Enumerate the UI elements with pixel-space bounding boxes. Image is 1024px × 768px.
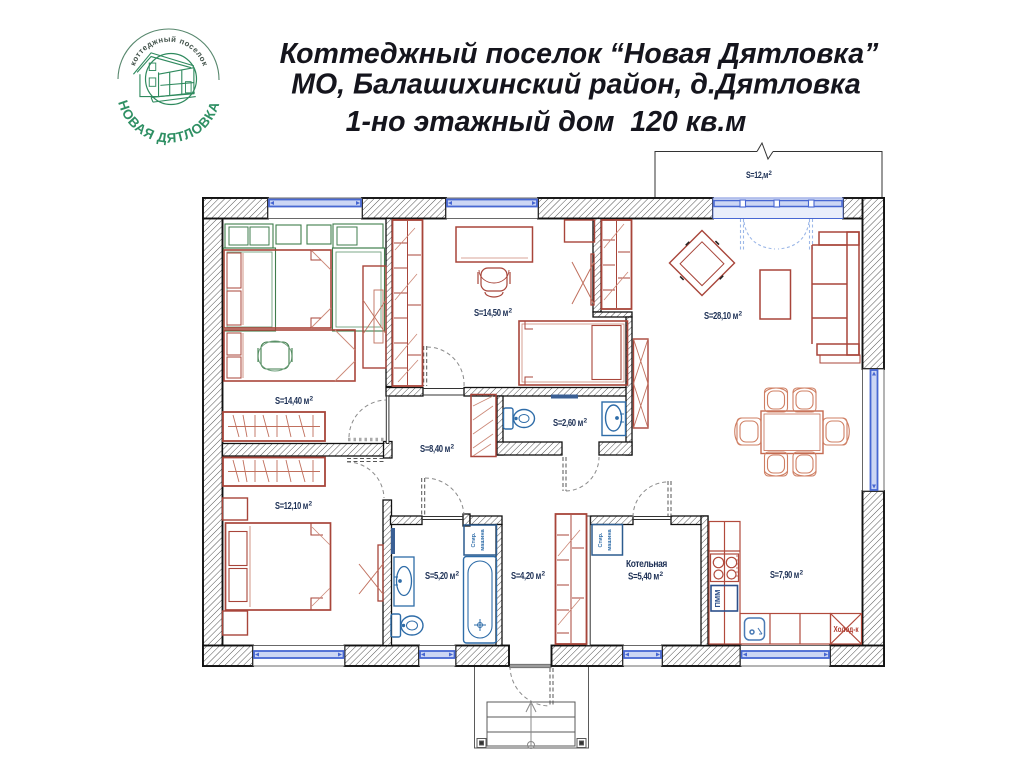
svg-text:S=12,10 м: S=12,10 м: [275, 501, 308, 512]
svg-text:S=7,90 м: S=7,90 м: [770, 570, 799, 581]
svg-text:S=5,20 м: S=5,20 м: [425, 571, 455, 582]
svg-text:машина: машина: [607, 528, 613, 550]
svg-text:S=12,м: S=12,м: [746, 170, 768, 181]
svg-text:МО, Балашихинский район, д.Дят: МО, Балашихинский район, д.Дятловка: [291, 69, 861, 101]
svg-text:Стир.: Стир.: [598, 532, 604, 547]
svg-text:S=4,20 м: S=4,20 м: [511, 571, 541, 582]
svg-text:машина: машина: [480, 528, 486, 550]
svg-text:ПММ: ПММ: [713, 590, 722, 608]
svg-text:S=2,60 м: S=2,60 м: [553, 418, 583, 429]
svg-text:Холод-к: Холод-к: [834, 625, 860, 634]
svg-text:Котельная: Котельная: [626, 559, 667, 570]
svg-text:S=14,50 м: S=14,50 м: [474, 308, 508, 319]
svg-text:S=8,40 м: S=8,40 м: [420, 444, 450, 455]
svg-text:Стир.: Стир.: [471, 532, 477, 547]
svg-text:S=5,40 м: S=5,40 м: [628, 572, 659, 583]
svg-text:1-но этажный дом 120 кв.м: 1-но этажный дом 120 кв.м: [346, 106, 747, 138]
svg-text:Коттеджный поселок “Новая Дятл: Коттеджный поселок “Новая Дятловка”: [280, 38, 879, 70]
svg-text:S=14,40 м: S=14,40 м: [275, 396, 309, 407]
svg-text:S=28,10 м: S=28,10 м: [704, 311, 738, 322]
